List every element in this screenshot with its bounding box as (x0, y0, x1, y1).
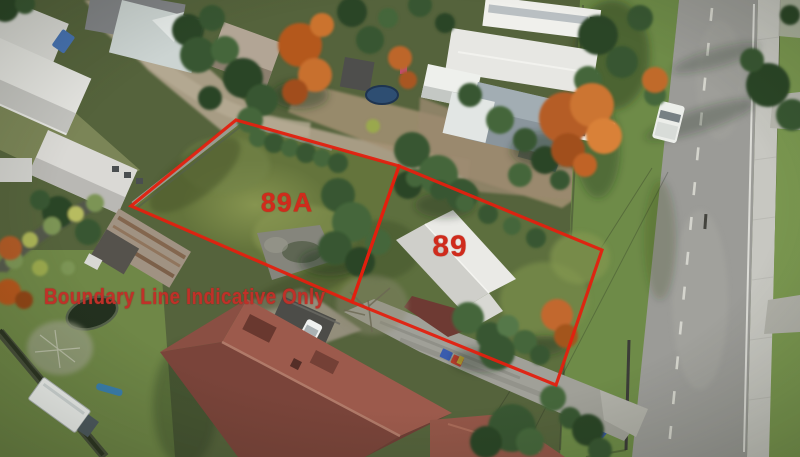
vignette (0, 0, 800, 457)
aerial-photo: 89A 89 Boundary Line Indicative Only (0, 0, 800, 457)
aerial-scene (0, 0, 800, 457)
